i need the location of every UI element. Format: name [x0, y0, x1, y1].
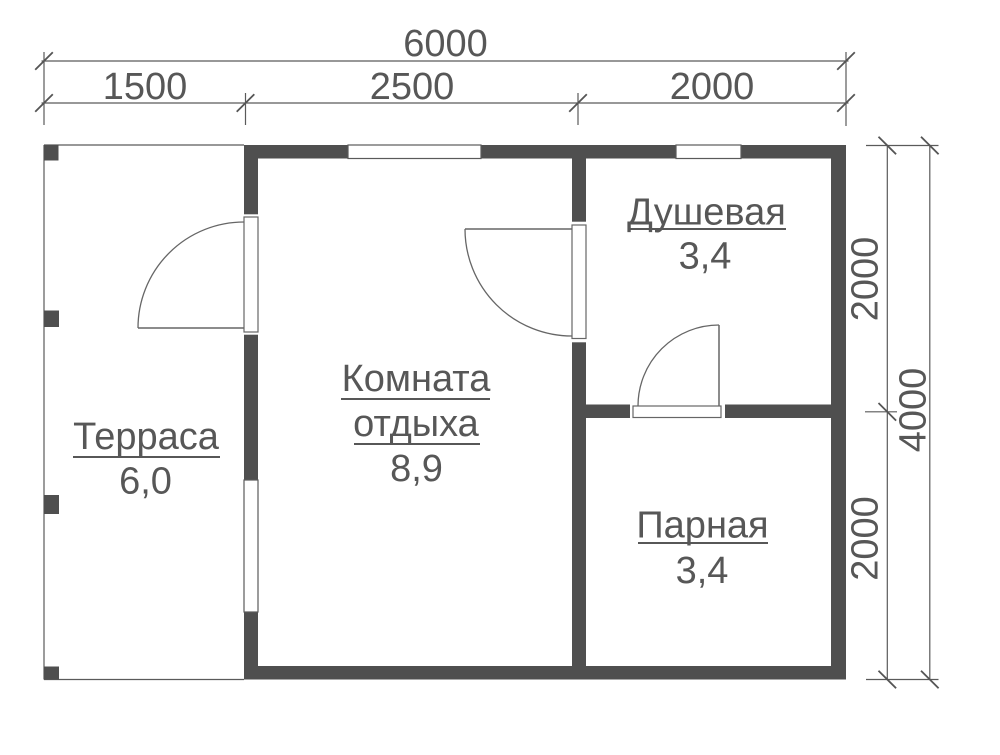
svg-text:Парная: Парная	[636, 505, 768, 547]
svg-text:Душевая: Душевая	[627, 192, 786, 234]
svg-text:3,4: 3,4	[676, 550, 729, 592]
svg-text:2000: 2000	[670, 66, 755, 108]
svg-text:1500: 1500	[103, 66, 188, 108]
svg-text:Терраса: Терраса	[73, 416, 220, 458]
svg-text:2000: 2000	[845, 496, 887, 581]
svg-text:Комната: Комната	[342, 358, 492, 400]
svg-text:3,4: 3,4	[679, 236, 732, 278]
svg-text:6000: 6000	[403, 23, 488, 65]
svg-text:4000: 4000	[893, 368, 935, 453]
svg-text:2000: 2000	[845, 237, 887, 322]
svg-text:8,9: 8,9	[390, 448, 443, 490]
svg-text:отдыха: отдыха	[353, 403, 480, 445]
svg-text:6,0: 6,0	[119, 461, 172, 503]
svg-text:2500: 2500	[370, 66, 455, 108]
